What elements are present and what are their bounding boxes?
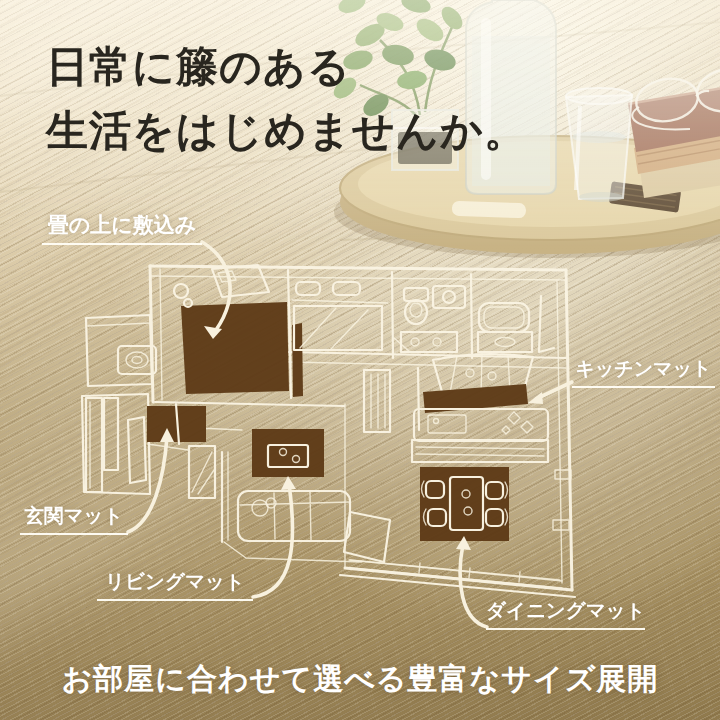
tray-handle-cutout: [452, 201, 526, 219]
tagline: お部屋に合わせて選べる豊富なサイズ展開: [0, 659, 720, 700]
living-area: [224, 429, 390, 562]
headline-line-1: 日常に籐のある: [46, 36, 527, 100]
living-mat: [252, 429, 324, 477]
tatami-mat: [181, 302, 289, 394]
callout-label-entrance: 玄関マット: [20, 502, 128, 535]
entrance-arrow: [128, 437, 167, 532]
callout-label-living: リビングマット: [97, 568, 253, 601]
closet-room: [292, 282, 388, 350]
callout-label-dining: ダイニングマット: [486, 597, 645, 630]
floor-lamp: [174, 284, 188, 298]
promo-banner: 日常に籐のある 生活をはじめませんか。 畳の上に敷込み キッチンマット 玄関マッ…: [0, 0, 720, 720]
dining-arrow: [460, 544, 487, 627]
toilet-room: [394, 286, 465, 352]
headline-line-2: 生活をはじめませんか。: [46, 100, 527, 164]
floorplan-illustration: [82, 265, 575, 597]
callout-label-kitchen: キッチンマット: [572, 356, 715, 388]
tatami-room: [174, 265, 303, 397]
bathroom: [478, 296, 554, 352]
louver-cabinet: [364, 370, 390, 432]
drinking-glass: [566, 88, 632, 202]
callout-label-tatami: 畳の上に敷込み: [42, 211, 202, 245]
headline: 日常に籐のある 生活をはじめませんか。: [46, 36, 527, 164]
